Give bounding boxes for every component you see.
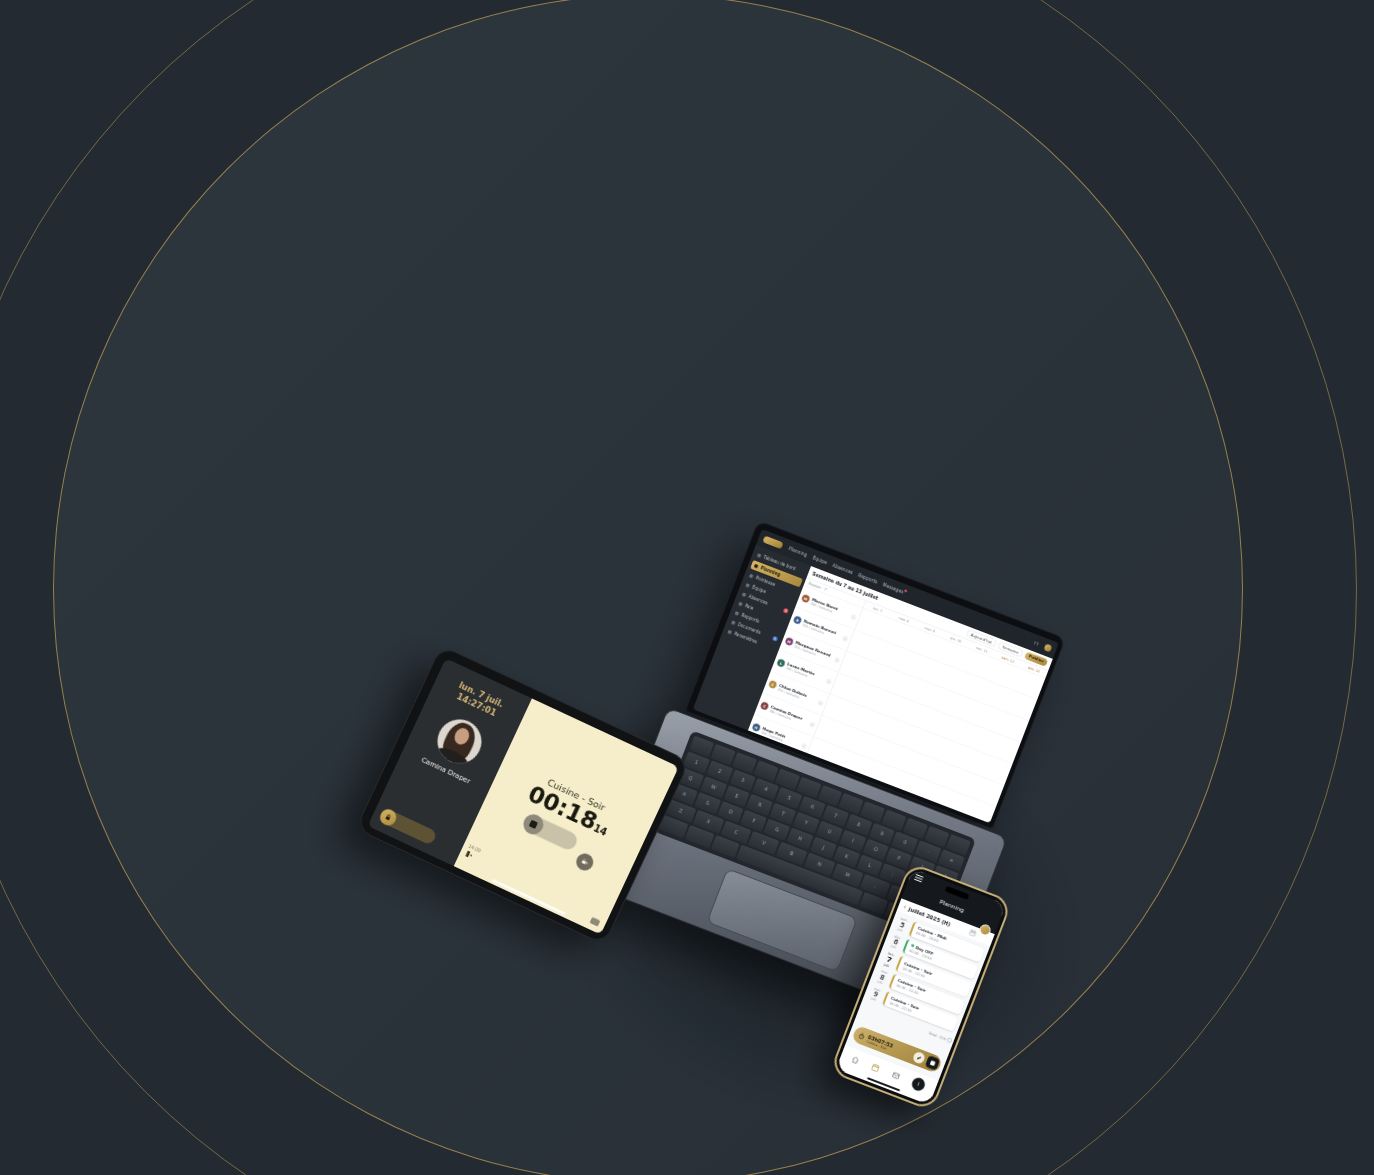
stop-icon <box>529 820 538 829</box>
notifications-icon[interactable] <box>1034 641 1039 646</box>
day-date: sam. 5 juil. <box>894 916 911 934</box>
hamburger-menu-icon[interactable] <box>914 874 924 882</box>
keyboard-toggle-icon[interactable] <box>590 917 601 927</box>
sidebar-item-icon <box>749 574 754 579</box>
user-avatar[interactable] <box>1043 643 1052 652</box>
dynamic-island <box>944 885 971 901</box>
sidebar-item-icon <box>738 602 743 607</box>
sidebar-item-icon <box>742 592 747 597</box>
lock-slider[interactable] <box>378 807 438 846</box>
sidebar-item-icon <box>735 611 740 616</box>
lock-icon <box>384 813 393 822</box>
messages-icon[interactable] <box>891 1070 901 1080</box>
coffee-icon <box>579 857 590 868</box>
add-shift-button[interactable]: + <box>842 635 848 641</box>
add-shift-button[interactable]: + <box>850 614 856 620</box>
topbar-nav-item[interactable]: Absences <box>832 563 854 575</box>
account-fab[interactable]: i <box>910 1076 927 1093</box>
add-shift-button[interactable]: + <box>801 743 807 749</box>
topbar-nav-item[interactable]: Messages <box>882 582 904 595</box>
topbar-nav-item[interactable]: Planning <box>788 546 808 558</box>
weekly-total-label: Total : 32h <box>928 1030 946 1040</box>
employee-avatar: C <box>760 701 770 711</box>
employee-avatar: M <box>784 637 794 647</box>
hero-scene: PlanningÉquipeAbsencesRapportsMessages <box>0 0 1374 1175</box>
clock-ring-icon <box>947 1037 953 1043</box>
employee-avatar: C <box>768 680 778 690</box>
employee-avatar: L <box>776 658 786 668</box>
home-icon[interactable] <box>850 1055 860 1065</box>
sidebar-item-label: Paie <box>744 603 754 611</box>
sidebar-item-badge: 3 <box>783 607 789 613</box>
sidebar-item-icon <box>728 630 733 635</box>
edit-timer-button[interactable] <box>912 1051 926 1065</box>
sidebar-item-icon <box>731 620 736 625</box>
brand-logo <box>762 536 783 550</box>
calendar-icon[interactable] <box>969 929 977 936</box>
clockin-info: 14:09 <box>464 844 482 862</box>
current-datetime: lun. 7 juil. 14:27:01 <box>453 680 506 720</box>
stop-icon <box>930 1060 936 1066</box>
topbar-nav-item[interactable]: Rapports <box>857 573 878 585</box>
timer-seconds: 14 <box>591 822 609 839</box>
break-button[interactable] <box>573 851 596 874</box>
topbar-nav-item[interactable]: Équipe <box>812 555 828 565</box>
day-date: mar. 8 juil. <box>874 968 891 986</box>
off-dot <box>911 944 915 948</box>
weekly-total: Total : 32h <box>928 1030 952 1043</box>
add-shift-button[interactable]: + <box>809 721 815 727</box>
add-shift-button[interactable]: + <box>817 700 823 706</box>
pencil-icon <box>915 1054 922 1061</box>
day-date: mer. 9 juil. <box>867 985 884 1003</box>
employee-avatar: M <box>801 594 811 604</box>
sidebar-item-icon <box>745 583 750 588</box>
employee-avatar: R <box>793 615 803 625</box>
back-chevron-icon[interactable]: ‹ <box>902 903 907 910</box>
sidebar-item-icon <box>757 553 762 558</box>
planning-tab-icon[interactable] <box>870 1062 880 1072</box>
add-shift-button[interactable]: + <box>826 678 832 684</box>
stop-timer-button[interactable] <box>925 1055 941 1071</box>
stopwatch-icon <box>858 1032 866 1040</box>
day-date: dim. 6 juil. <box>887 933 904 951</box>
sidebar-item-badge: 1 <box>772 635 778 641</box>
sidebar-item-icon <box>754 564 759 569</box>
add-shift-button[interactable]: + <box>834 657 840 663</box>
employee-avatar: H <box>751 723 761 733</box>
